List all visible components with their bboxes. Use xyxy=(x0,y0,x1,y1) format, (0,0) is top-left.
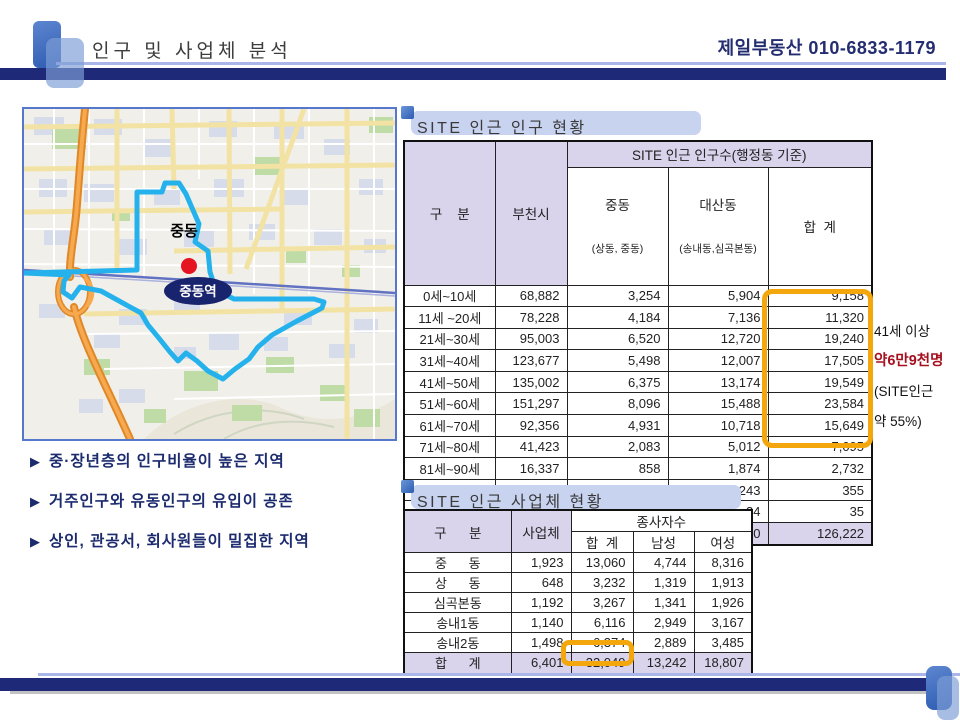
row-label-cell: 중 동 xyxy=(404,553,511,573)
value-cell: 5,904 xyxy=(668,285,768,307)
col-header-group: 구 분 xyxy=(404,510,511,553)
header-deco-square-front xyxy=(46,38,84,88)
bullet-text: 거주인구와 유동인구의 유입이 공존 xyxy=(49,492,294,511)
value-cell: 1,341 xyxy=(633,593,694,613)
key-points: ▶ 중·장년층의 인구비율이 높은 지역 ▶ 거주인구와 유동인구의 유입이 공… xyxy=(30,452,400,572)
col-header-jungdong: 중동 (상동, 중동) xyxy=(567,167,668,285)
row-label-cell: 11세 ~20세 xyxy=(404,307,495,329)
contact-info: 제일부동산 010-6833-1179 xyxy=(718,34,936,60)
annotation-line: 41세 이상 xyxy=(874,321,960,342)
col-header-group: 구 분 xyxy=(404,141,495,285)
population-section-title: SITE 인근 인구 현황 xyxy=(417,114,587,138)
col-header-daesan: 대산동 (송내동,심곡본동) xyxy=(668,167,768,285)
value-cell: 3,232 xyxy=(571,573,633,593)
value-cell: 12,007 xyxy=(668,350,768,372)
table-row: 심곡본동1,1923,2671,3411,926 xyxy=(404,593,752,613)
value-cell: 858 xyxy=(567,458,668,480)
value-cell: 92,356 xyxy=(495,415,567,437)
value-cell: 4,931 xyxy=(567,415,668,437)
value-cell: 151,297 xyxy=(495,393,567,415)
value-cell: 41,423 xyxy=(495,436,567,458)
value-cell: 68,882 xyxy=(495,285,567,307)
page-title: 인구 및 사업체 분석 xyxy=(92,36,292,63)
triangle-bullet-icon: ▶ xyxy=(30,492,41,511)
footer-shadow-line xyxy=(10,691,948,694)
site-marker-dot xyxy=(181,258,197,274)
value-cell: 12,720 xyxy=(668,328,768,350)
value-cell: 648 xyxy=(511,573,571,593)
table-row: 중 동1,92313,0604,7448,316 xyxy=(404,553,752,573)
col-header-total: 합 계 xyxy=(768,167,872,285)
table-row: 81세~90세16,3378581,8742,732 xyxy=(404,458,872,480)
row-label-cell: 합 계 xyxy=(404,653,511,674)
value-cell: 1,923 xyxy=(511,553,571,573)
value-cell: 1,913 xyxy=(694,573,752,593)
value-cell: 7,136 xyxy=(668,307,768,329)
value-cell: 2,889 xyxy=(633,633,694,653)
row-label-cell: 71세~80세 xyxy=(404,436,495,458)
footer-deco-square-front xyxy=(937,676,959,720)
row-label-cell: 31세~40세 xyxy=(404,350,495,372)
value-cell: 13,060 xyxy=(571,553,633,573)
row-label-cell: 41세~50세 xyxy=(404,371,495,393)
col-header-workers: 종사자수 xyxy=(571,510,752,532)
header-navy-bar xyxy=(0,68,946,80)
value-cell: 4,744 xyxy=(633,553,694,573)
col-header-business: 사업체 xyxy=(511,510,571,553)
table-row: 상 동6483,2321,3191,913 xyxy=(404,573,752,593)
row-label-cell: 81세~90세 xyxy=(404,458,495,480)
section-bullet-square xyxy=(401,480,414,493)
col-header-bucheon: 부천시 xyxy=(495,141,567,285)
value-cell: 3,267 xyxy=(571,593,633,613)
value-cell: 95,003 xyxy=(495,328,567,350)
value-cell: 1,926 xyxy=(694,593,752,613)
value-cell: 1,319 xyxy=(633,573,694,593)
value-cell: 8,316 xyxy=(694,553,752,573)
value-cell: 13,174 xyxy=(668,371,768,393)
footer-navy-bar xyxy=(0,678,948,691)
col-header-line: 대산동 xyxy=(669,198,768,213)
col-header-female: 여성 xyxy=(694,532,752,553)
row-label-cell: 상 동 xyxy=(404,573,511,593)
highlight-box-worker-total xyxy=(561,640,634,666)
row-label-cell: 송내1동 xyxy=(404,613,511,633)
col-header-total: 합 계 xyxy=(571,532,633,553)
value-cell: 5,012 xyxy=(668,436,768,458)
triangle-bullet-icon: ▶ xyxy=(30,532,41,551)
bullet-text: 상인, 관공서, 회사원들이 밀집한 지역 xyxy=(49,532,310,551)
value-cell: 3,167 xyxy=(694,613,752,633)
slide: 인구 및 사업체 분석 제일부동산 010-6833-1179 xyxy=(0,0,960,720)
bullet-item: ▶ 중·장년층의 인구비율이 높은 지역 xyxy=(30,452,400,471)
highlight-box-age-totals xyxy=(762,289,873,448)
bullet-text: 중·장년층의 인구비율이 높은 지역 xyxy=(49,452,285,471)
map-area-label: 중동 xyxy=(170,223,198,240)
value-cell: 18,807 xyxy=(694,653,752,674)
value-cell: 1,140 xyxy=(511,613,571,633)
row-label-cell: 0세~10세 xyxy=(404,285,495,307)
col-header-subline: (송내동,심곡본동) xyxy=(669,243,768,255)
value-cell: 78,228 xyxy=(495,307,567,329)
annotation-line: 약 55%) xyxy=(874,411,960,432)
footer-light-line xyxy=(38,673,960,676)
value-cell: 355 xyxy=(768,479,872,501)
value-cell: 13,242 xyxy=(633,653,694,674)
site-map: 중동 중동역 xyxy=(22,107,397,441)
value-cell: 2,083 xyxy=(567,436,668,458)
value-cell: 2,732 xyxy=(768,458,872,480)
age-annotation: 41세 이상 약6만9천명 (SITE인근 약 55%) xyxy=(874,321,960,441)
map-graphic: 중동 중동역 xyxy=(24,109,395,439)
row-label-cell: 송내2동 xyxy=(404,633,511,653)
row-label-cell: 61세~70세 xyxy=(404,415,495,437)
value-cell: 3,254 xyxy=(567,285,668,307)
value-cell: 8,096 xyxy=(567,393,668,415)
col-header-male: 남성 xyxy=(633,532,694,553)
value-cell: 3,485 xyxy=(694,633,752,653)
value-cell: 5,498 xyxy=(567,350,668,372)
bullet-item: ▶ 거주인구와 유동인구의 유입이 공존 xyxy=(30,492,400,511)
value-cell: 1,874 xyxy=(668,458,768,480)
value-cell: 16,337 xyxy=(495,458,567,480)
row-label-cell: 51세~60세 xyxy=(404,393,495,415)
value-cell: 1,192 xyxy=(511,593,571,613)
value-cell: 2,949 xyxy=(633,613,694,633)
annotation-highlight: 약6만9천명 xyxy=(874,351,960,372)
value-cell: 6,520 xyxy=(567,328,668,350)
value-cell: 4,184 xyxy=(567,307,668,329)
value-cell: 6,116 xyxy=(571,613,633,633)
value-cell: 15,488 xyxy=(668,393,768,415)
table-row: 송내1동1,1406,1162,9493,167 xyxy=(404,613,752,633)
business-section-title: SITE 인근 사업체 현황 xyxy=(417,488,604,512)
value-cell: 135,002 xyxy=(495,371,567,393)
value-cell: 123,677 xyxy=(495,350,567,372)
col-header-site-population: SITE 인근 인구수(행정동 기준) xyxy=(567,141,872,167)
value-cell: 6,375 xyxy=(567,371,668,393)
row-label-cell: 심곡본동 xyxy=(404,593,511,613)
col-header-subline: (상동, 중동) xyxy=(568,243,668,255)
value-cell: 126,222 xyxy=(768,523,872,545)
col-header-line: 중동 xyxy=(568,198,668,213)
value-cell: 10,718 xyxy=(668,415,768,437)
row-label-cell: 21세~30세 xyxy=(404,328,495,350)
value-cell: 35 xyxy=(768,501,872,523)
bullet-item: ▶ 상인, 관공서, 회사원들이 밀집한 지역 xyxy=(30,532,400,551)
annotation-line: (SITE인근 xyxy=(874,381,960,402)
triangle-bullet-icon: ▶ xyxy=(30,452,41,471)
section-bullet-square xyxy=(401,106,414,119)
station-label: 중동역 xyxy=(179,283,216,299)
